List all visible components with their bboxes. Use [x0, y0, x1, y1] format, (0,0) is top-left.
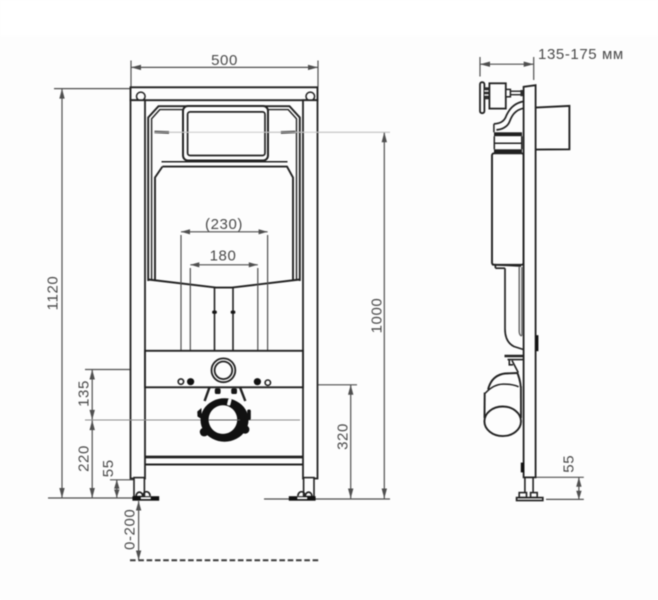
svg-text:135: 135	[76, 380, 93, 407]
svg-text:0-200: 0-200	[122, 509, 139, 550]
svg-text:(230): (230)	[205, 216, 243, 233]
svg-text:1000: 1000	[369, 298, 386, 334]
svg-text:500: 500	[211, 52, 238, 69]
svg-text:55: 55	[100, 459, 117, 477]
svg-text:55: 55	[561, 455, 578, 473]
svg-text:220: 220	[76, 445, 93, 472]
svg-text:1120: 1120	[45, 276, 62, 311]
svg-text:320: 320	[335, 423, 352, 450]
svg-text:135-175 мм: 135-175 мм	[538, 46, 624, 63]
svg-text:180: 180	[210, 248, 237, 265]
